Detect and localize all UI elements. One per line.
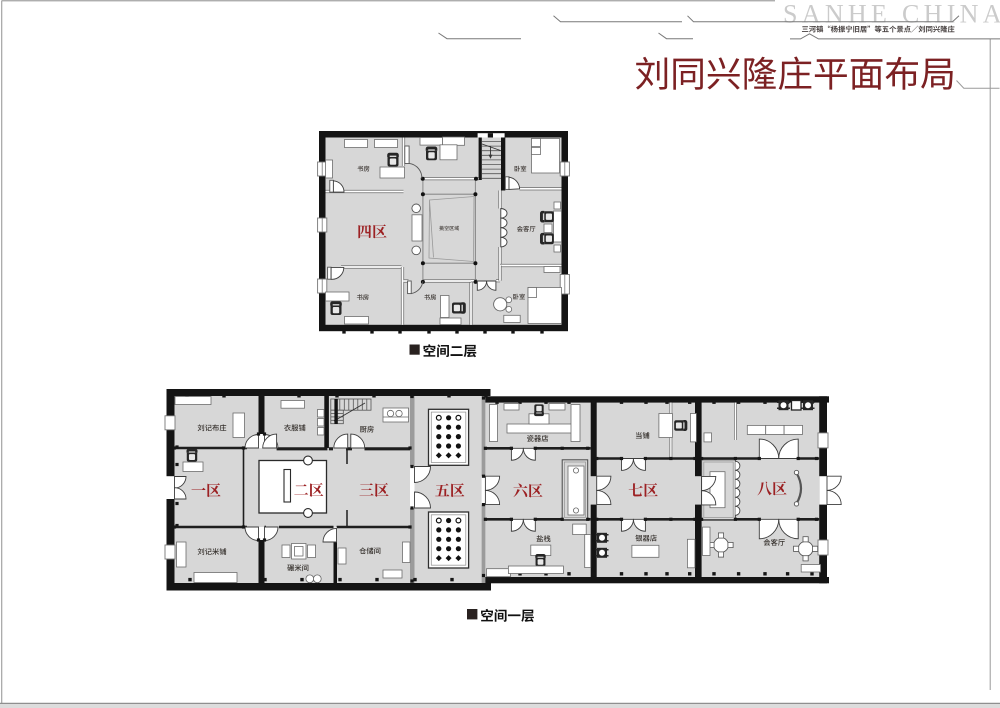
svg-text:SANHE CHINA: SANHE CHINA (783, 0, 1000, 29)
